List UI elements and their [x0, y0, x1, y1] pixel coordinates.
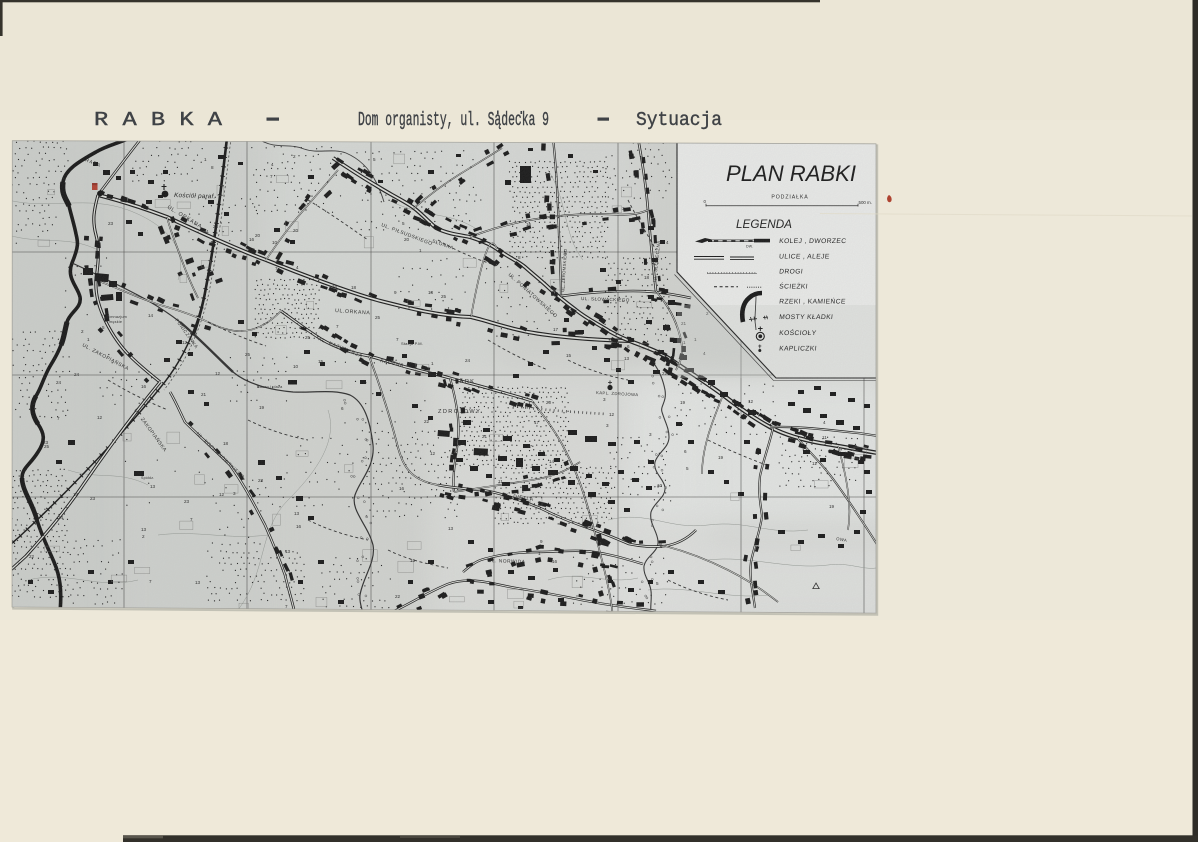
svg-text:Dom organisty, ul. Sądecka 9: Dom organisty, ul. Sądecka 9: [358, 109, 549, 131]
svg-text:R A B K A: R A B K A: [94, 109, 223, 131]
svg-text:Sytuacja: Sytuacja: [636, 109, 722, 131]
